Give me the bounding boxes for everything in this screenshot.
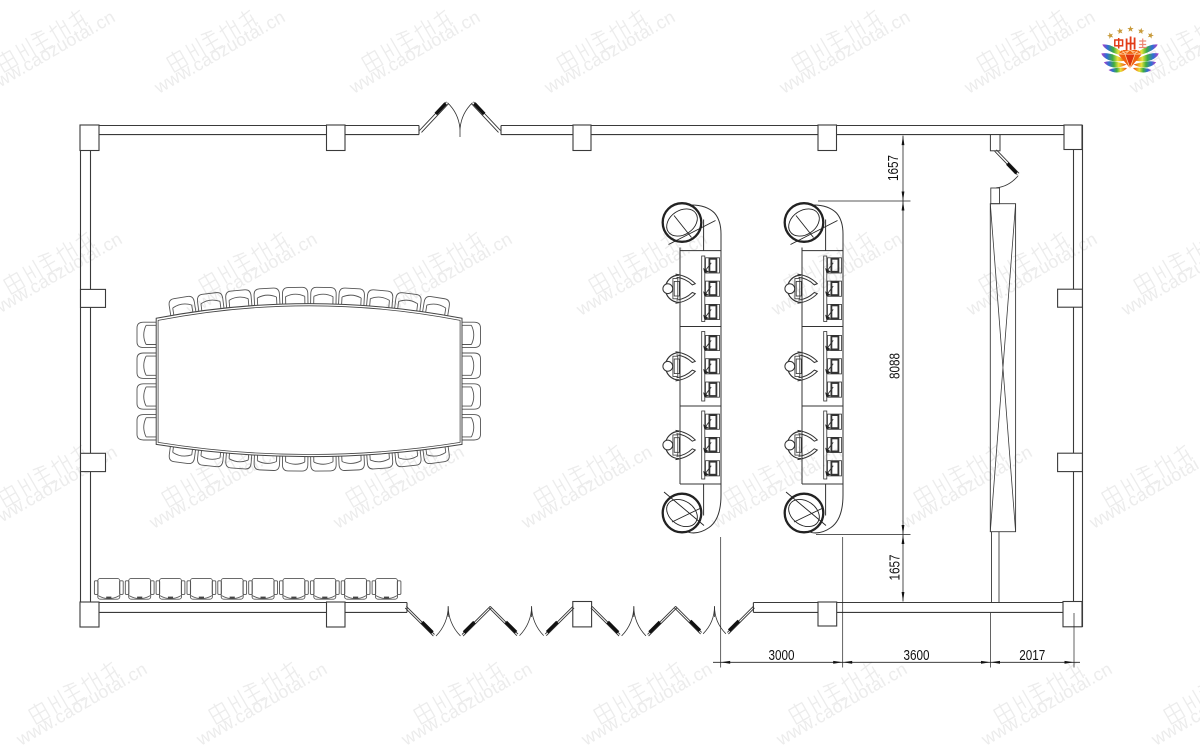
- svg-text:1657: 1657: [886, 155, 902, 181]
- svg-text:8088: 8088: [888, 353, 904, 379]
- svg-text:3600: 3600: [904, 648, 930, 664]
- svg-text:1657: 1657: [888, 555, 904, 581]
- svg-text:2017: 2017: [1019, 648, 1045, 664]
- svg-text:3000: 3000: [769, 648, 795, 664]
